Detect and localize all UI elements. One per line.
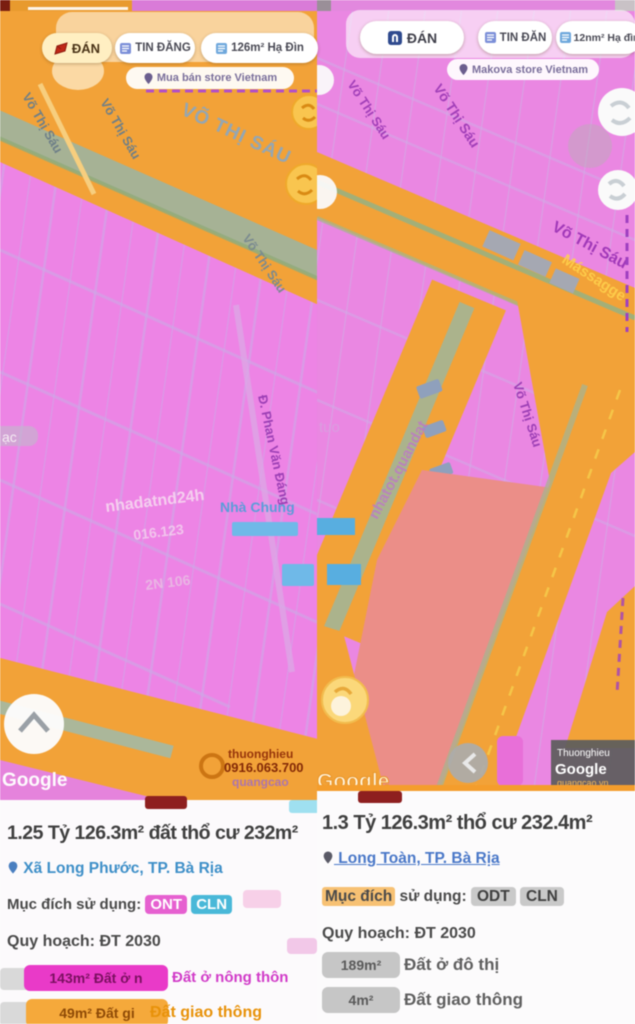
svg-text:0916.063.700: 0916.063.700	[224, 760, 304, 775]
svg-text:thuonghieu: thuonghieu	[228, 747, 293, 761]
svg-text:quangcao: quangcao	[232, 775, 289, 789]
svg-text:tuo: tuo	[319, 419, 340, 436]
svg-text:Nhà Chung: Nhà Chung	[220, 499, 295, 515]
svg-text:Google: Google	[555, 761, 607, 778]
svg-text:Thuonghieu: Thuonghieu	[557, 748, 610, 759]
svg-text:ạc: ạc	[2, 429, 17, 445]
svg-text:Google: Google	[2, 770, 67, 791]
